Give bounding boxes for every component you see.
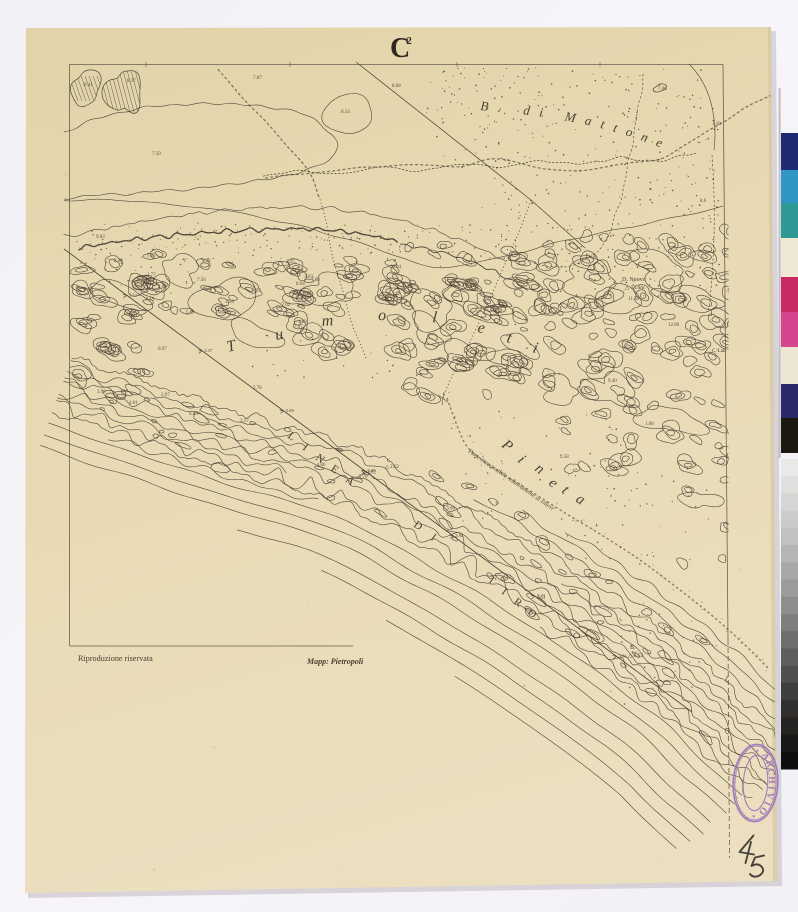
svg-text:12.80: 12.80 xyxy=(668,323,680,328)
svg-text:△ 6.52: △ 6.52 xyxy=(628,653,643,659)
svg-text:C.ˢLab.: C.ˢLab. xyxy=(712,349,727,354)
svg-text:11.50: 11.50 xyxy=(628,297,640,302)
svg-text:4.36: 4.36 xyxy=(225,300,234,305)
svg-text:H: H xyxy=(766,776,776,784)
svg-text:7.87: 7.87 xyxy=(253,76,262,81)
svg-text:6.97: 6.97 xyxy=(158,347,167,352)
svg-text:6.33: 6.33 xyxy=(252,289,261,294)
svg-text:8.04: 8.04 xyxy=(392,265,401,270)
svg-text:8.41: 8.41 xyxy=(84,83,93,88)
svg-text:2.78: 2.78 xyxy=(253,386,262,391)
svg-text:3.29: 3.29 xyxy=(388,295,397,300)
svg-text:2.47: 2.47 xyxy=(286,260,295,265)
svg-text:5.26: 5.26 xyxy=(202,259,211,264)
svg-text:2.71: 2.71 xyxy=(137,280,146,285)
svg-text:m: m xyxy=(321,312,334,330)
svg-text:2.97: 2.97 xyxy=(161,393,170,398)
svg-text:8.6: 8.6 xyxy=(700,199,707,204)
svg-text:D. Nuovo: D. Nuovo xyxy=(622,277,646,283)
svg-text:5.41: 5.41 xyxy=(129,313,138,318)
svg-text:5.70: 5.70 xyxy=(359,475,368,480)
svg-text:4.18: 4.18 xyxy=(293,291,302,296)
svg-text:3.92: 3.92 xyxy=(455,533,464,538)
svg-text:7.62: 7.62 xyxy=(282,303,291,308)
svg-text:3.86: 3.86 xyxy=(619,653,628,658)
svg-text:7.08: 7.08 xyxy=(658,87,667,92)
svg-text:1.89: 1.89 xyxy=(298,320,307,325)
svg-text:3.06: 3.06 xyxy=(446,506,455,511)
svg-text:2.86: 2.86 xyxy=(294,269,303,274)
svg-text:7.88: 7.88 xyxy=(311,278,320,283)
svg-text:6.19: 6.19 xyxy=(146,297,155,302)
svg-text:3.98: 3.98 xyxy=(97,390,106,395)
svg-text:9.40: 9.40 xyxy=(608,379,617,384)
svg-text:8.14: 8.14 xyxy=(341,110,350,115)
svg-text:4.82: 4.82 xyxy=(367,470,376,475)
svg-text:C.: C. xyxy=(387,459,392,464)
svg-text:B.: B. xyxy=(630,645,636,651)
svg-text:o: o xyxy=(378,307,387,324)
svg-text:1.77: 1.77 xyxy=(147,273,156,278)
svg-text:3.66: 3.66 xyxy=(297,303,306,308)
svg-text:Mapp: Pietropoli: Mapp: Pietropoli xyxy=(306,657,364,666)
svg-text:8.37: 8.37 xyxy=(127,79,136,84)
svg-text:4.01: 4.01 xyxy=(129,401,138,406)
svg-text:✶: ✶ xyxy=(754,748,759,755)
svg-text:5.25: 5.25 xyxy=(147,254,156,259)
svg-text:12.50: 12.50 xyxy=(585,255,597,260)
svg-text:8.94: 8.94 xyxy=(296,282,305,287)
svg-text:2: 2 xyxy=(407,36,412,47)
svg-text:5.69: 5.69 xyxy=(286,408,295,413)
svg-text:7.56: 7.56 xyxy=(197,278,206,283)
svg-text:3.37: 3.37 xyxy=(204,348,213,353)
svg-text:9.03: 9.03 xyxy=(96,235,105,240)
svg-text:1.59: 1.59 xyxy=(84,288,93,293)
svg-text:1.10: 1.10 xyxy=(712,122,721,127)
svg-text:7.50: 7.50 xyxy=(152,152,161,157)
svg-text:△ 13.0m: △ 13.0m xyxy=(625,285,645,291)
svg-text:4.07: 4.07 xyxy=(302,292,311,297)
svg-text:7.97: 7.97 xyxy=(294,325,303,330)
svg-text:6.43: 6.43 xyxy=(189,412,198,417)
svg-text:3.17: 3.17 xyxy=(240,419,249,424)
svg-text:5.89: 5.89 xyxy=(186,311,195,316)
svg-text:2.39: 2.39 xyxy=(114,259,123,264)
svg-text:2.58: 2.58 xyxy=(560,455,569,460)
svg-text:1.08: 1.08 xyxy=(645,422,654,427)
svg-text:2.53: 2.53 xyxy=(537,596,546,601)
svg-text:2.12: 2.12 xyxy=(503,575,512,580)
svg-text:Riproduzione riservata: Riproduzione riservata xyxy=(78,654,153,663)
svg-text:✶: ✶ xyxy=(751,813,756,820)
svg-text:8.08: 8.08 xyxy=(392,84,401,89)
svg-text:2.62: 2.62 xyxy=(158,285,167,290)
svg-text:△ 2.62: △ 2.62 xyxy=(385,464,399,470)
